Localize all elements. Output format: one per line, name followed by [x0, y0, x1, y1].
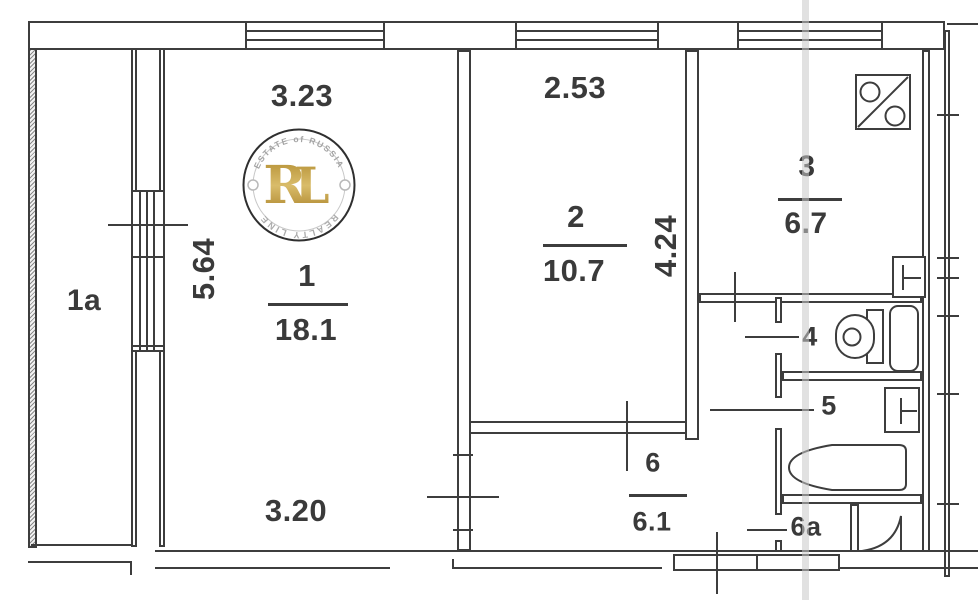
- room-number-bedroom: 2: [567, 199, 585, 235]
- watermark-left-dot-icon: [248, 180, 258, 190]
- dimension-bedroom-right: 4.24: [648, 215, 684, 277]
- dimension-bedroom-top: 2.53: [544, 70, 606, 106]
- room-area-living: 18.1: [275, 312, 337, 348]
- room-area-bedroom: 10.7: [543, 253, 605, 289]
- floor-plan: 3.23 2.53 5.64 4.24 3.20 1a 1 18.1 2 10.…: [0, 0, 978, 600]
- watermark-monogram-l: L: [294, 156, 329, 215]
- room-area-hallway: 6.1: [632, 507, 671, 538]
- room-underline-bedroom: [543, 244, 627, 247]
- stove-vent-icon: [856, 75, 910, 129]
- room-underline-living: [268, 303, 348, 306]
- dimension-living-top: 3.23: [271, 78, 333, 114]
- fixtures-layer: [0, 0, 978, 600]
- dimension-living-left: 5.64: [186, 238, 222, 300]
- toilet-icon: [836, 306, 918, 371]
- room-number-hallway: 6: [645, 448, 661, 479]
- room-underline-kitchen: [778, 198, 842, 201]
- washbasin-icon: [885, 388, 919, 432]
- corner-shower-icon: [862, 516, 901, 551]
- room-number-living: 1: [298, 258, 316, 294]
- sink-icon: [893, 257, 925, 297]
- room-underline-hallway: [629, 494, 687, 497]
- watermark-right-dot-icon: [340, 180, 350, 190]
- scan-artifact-line: [802, 0, 809, 600]
- watermark-logo: ESTATE of RUSSIA REALTY LINE R L: [240, 126, 358, 244]
- room-number-bathroom: 5: [821, 391, 837, 422]
- room-label-balcony: 1a: [67, 284, 101, 318]
- dimension-living-bottom: 3.20: [265, 493, 327, 529]
